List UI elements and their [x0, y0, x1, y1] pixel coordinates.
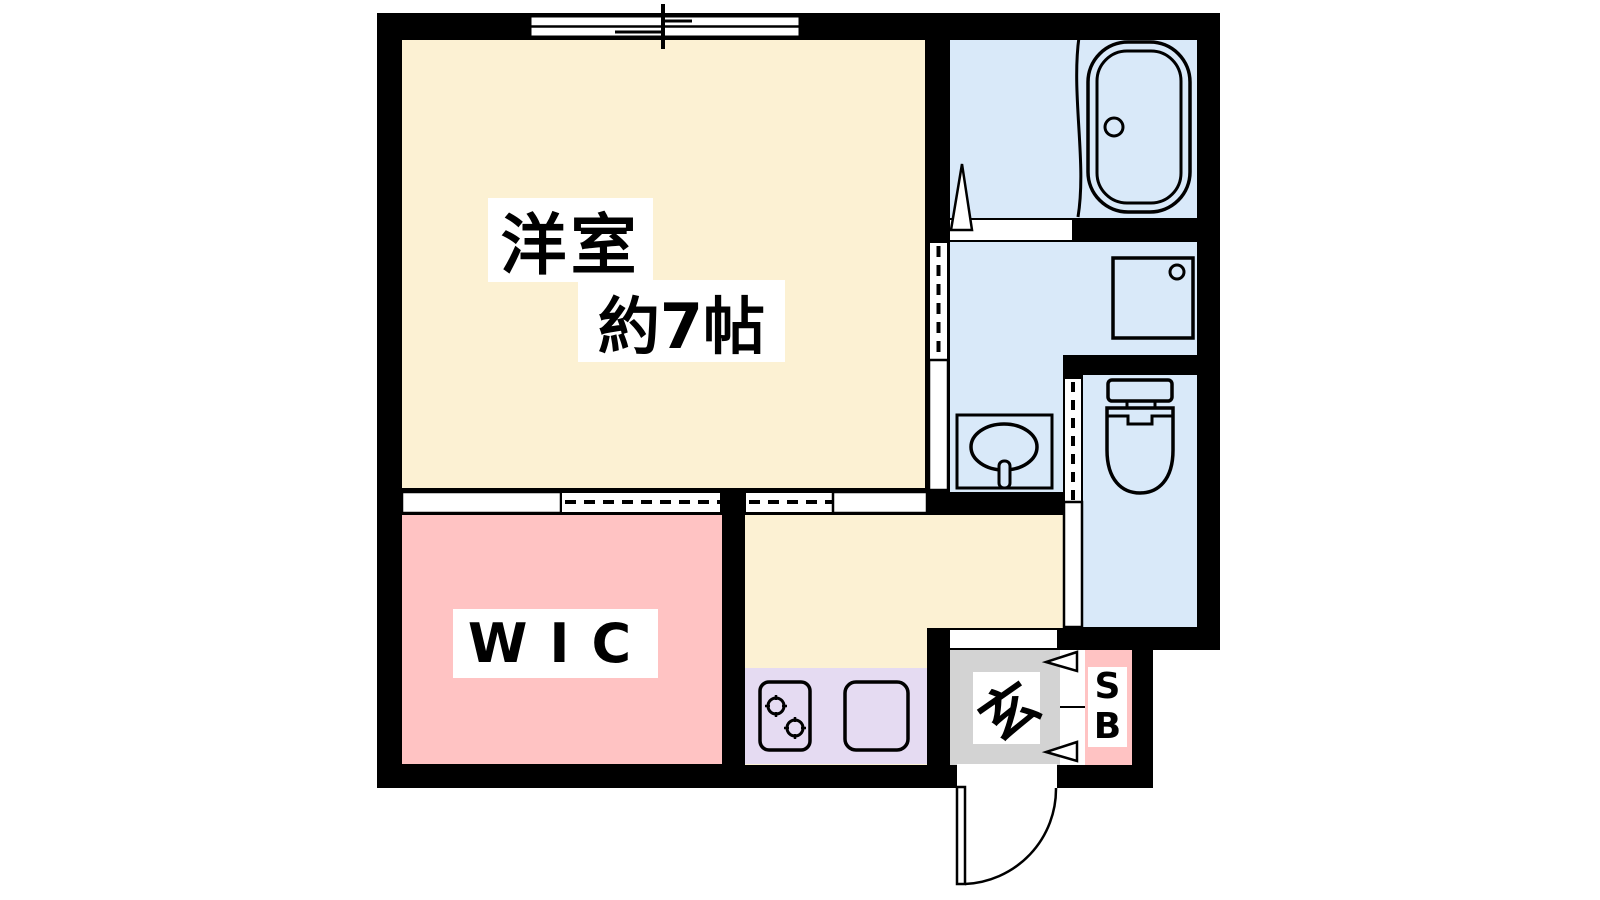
kitchen-sliding-door-icon [745, 492, 927, 513]
entrance-opening [950, 630, 1057, 648]
western-room-size-label: 約7帖 [578, 280, 785, 362]
western-room-label: 洋室 [488, 198, 653, 282]
wic-sliding-door-icon [402, 492, 721, 513]
shoe-box-label-line1: S [1095, 667, 1121, 707]
fixtures-layer [0, 0, 1600, 900]
washing-machine-pan-icon [1113, 258, 1193, 338]
entrance-door-icon [957, 764, 1057, 884]
washroom-sliding-door-icon [929, 242, 948, 490]
shoe-box-arrow-icon [1046, 652, 1085, 761]
washbasin-icon [957, 415, 1052, 488]
shower-door-icon [951, 164, 972, 230]
two-burner-stove-icon [760, 682, 810, 750]
sliding-window-icon [530, 4, 800, 49]
toilet-sliding-door-icon [1064, 378, 1082, 627]
floor-plan: 洋室 約7帖 WIC 玄 S B [0, 0, 1600, 900]
kitchen-sink-icon [845, 682, 908, 750]
shoe-box-label: S B [1088, 667, 1127, 747]
shoe-box-label-line2: B [1094, 707, 1121, 747]
bathtub-icon [1077, 37, 1190, 217]
entrance-label: 玄 [973, 672, 1040, 744]
toilet-icon [1107, 380, 1173, 493]
entrance-label-text: 玄 [960, 659, 1052, 757]
wic-label: WIC [453, 609, 658, 678]
